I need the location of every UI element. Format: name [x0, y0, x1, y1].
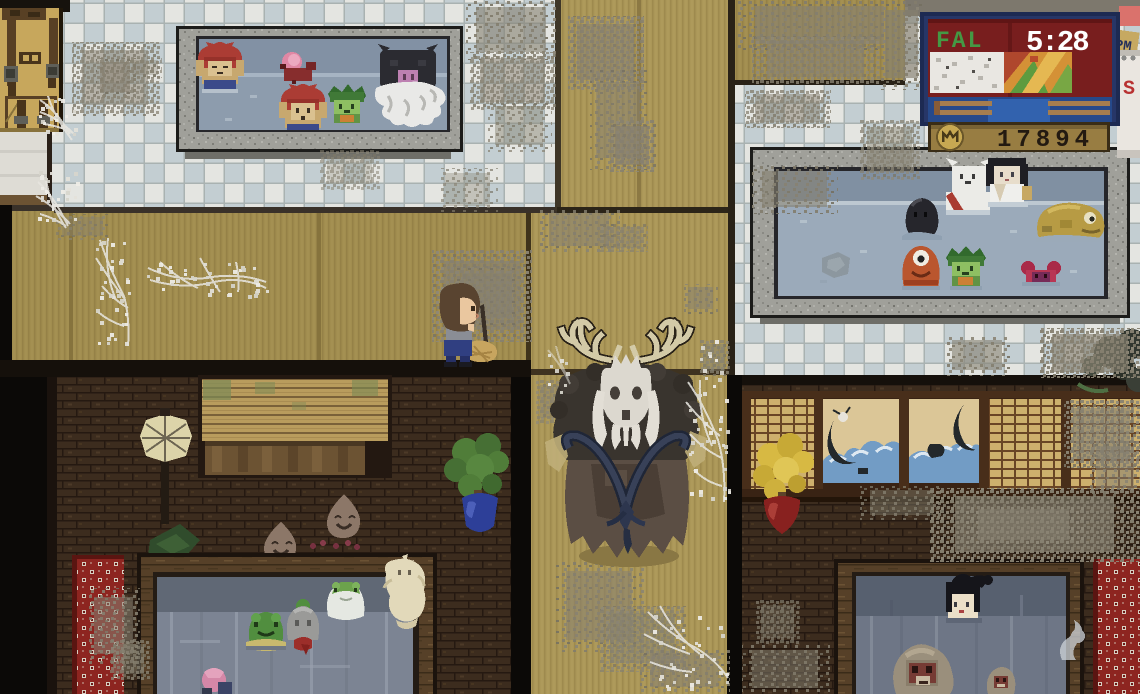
svg-text:FAL: FAL	[936, 28, 983, 54]
svg-text:17894: 17894	[997, 127, 1094, 154]
svg-text:S: S	[1123, 78, 1135, 101]
